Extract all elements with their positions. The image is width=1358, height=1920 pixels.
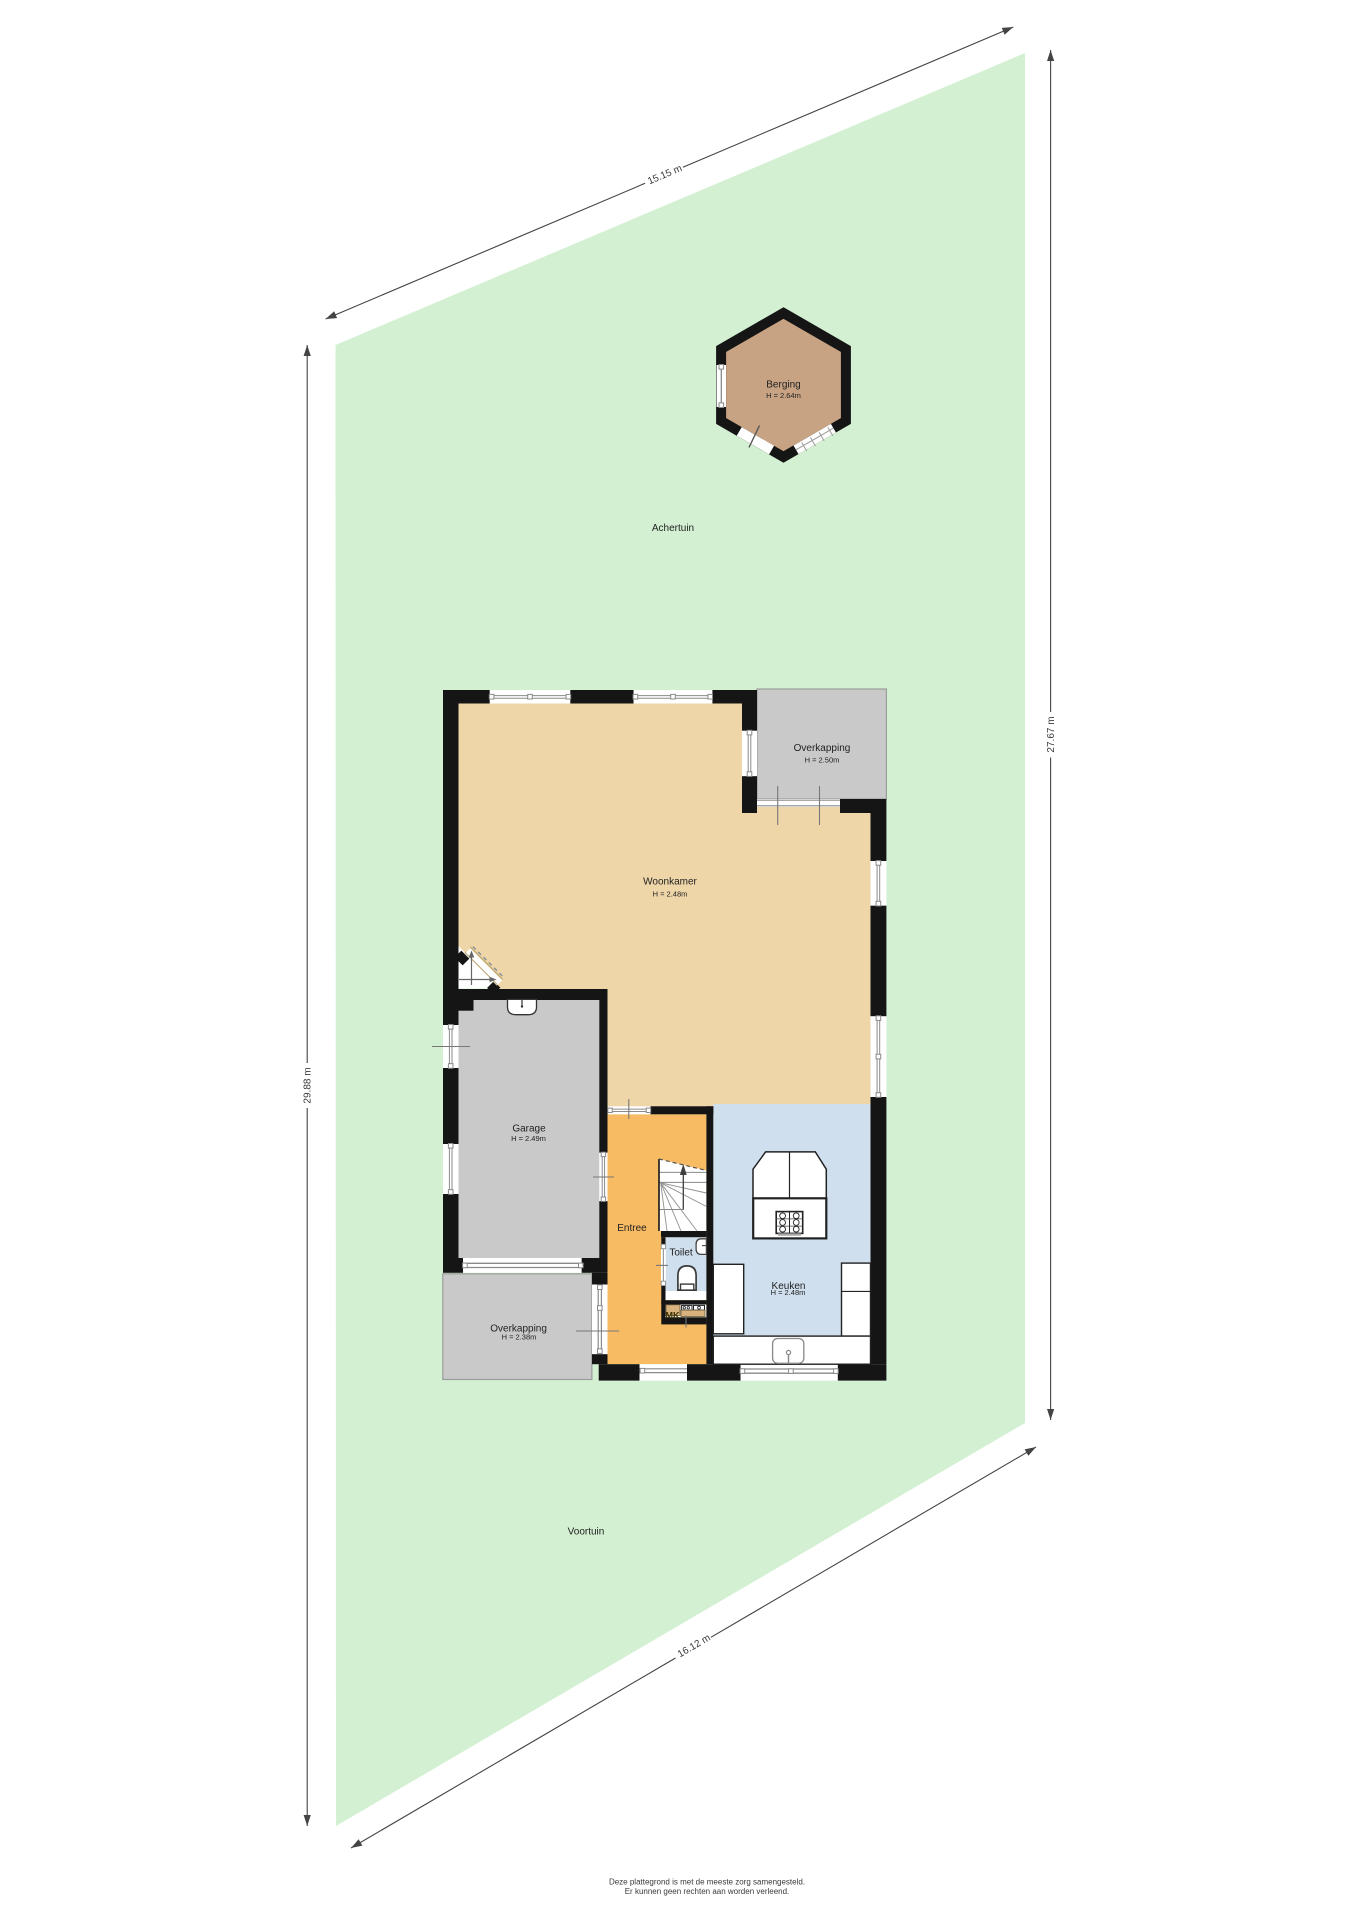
svg-text:H = 2.48m: H = 2.48m <box>771 1288 806 1297</box>
svg-text:H = 2.48m: H = 2.48m <box>653 890 688 899</box>
svg-text:Entree: Entree <box>617 1223 647 1234</box>
svg-text:Toilet: Toilet <box>669 1248 693 1259</box>
svg-text:Voortuin: Voortuin <box>568 1527 605 1538</box>
svg-text:H = 2.38m: H = 2.38m <box>502 1333 537 1342</box>
svg-text:MK: MK <box>666 1311 680 1321</box>
svg-text:H = 2.64m: H = 2.64m <box>766 391 801 400</box>
svg-text:H = 2.49m: H = 2.49m <box>511 1134 546 1143</box>
svg-text:Woonkamer: Woonkamer <box>643 877 697 888</box>
svg-text:29.88 m: 29.88 m <box>303 1067 314 1103</box>
svg-text:Berging: Berging <box>766 380 800 391</box>
svg-text:Garage: Garage <box>512 1124 546 1135</box>
svg-text:H = 2.50m: H = 2.50m <box>805 756 840 765</box>
svg-text:Er kunnen geen rechten aan wor: Er kunnen geen rechten aan worden verlee… <box>625 1887 790 1896</box>
svg-text:27.67 m: 27.67 m <box>1046 716 1057 752</box>
svg-text:Overkapping: Overkapping <box>794 743 851 754</box>
svg-text:Deze plattegrond is met de mee: Deze plattegrond is met de meeste zorg s… <box>609 1878 805 1887</box>
svg-text:Achertuin: Achertuin <box>652 523 694 534</box>
